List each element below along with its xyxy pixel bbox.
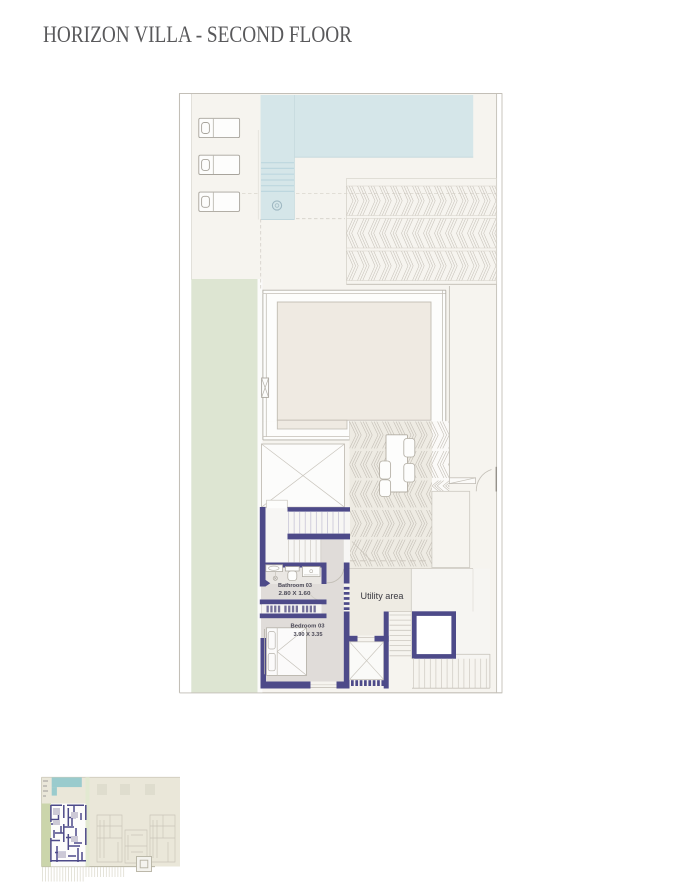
svg-text:HORIZON VILLA - SECOND FLOOR: HORIZON VILLA - SECOND FLOOR: [43, 22, 352, 48]
svg-text:Utility area: Utility area: [361, 591, 405, 602]
svg-text:2.80 X 1.60: 2.80 X 1.60: [279, 591, 311, 597]
svg-text:Bathroom 03: Bathroom 03: [278, 583, 312, 589]
svg-text:Bedroom 03: Bedroom 03: [291, 624, 325, 630]
svg-text:3.90 X 3.35: 3.90 X 3.35: [294, 632, 323, 638]
